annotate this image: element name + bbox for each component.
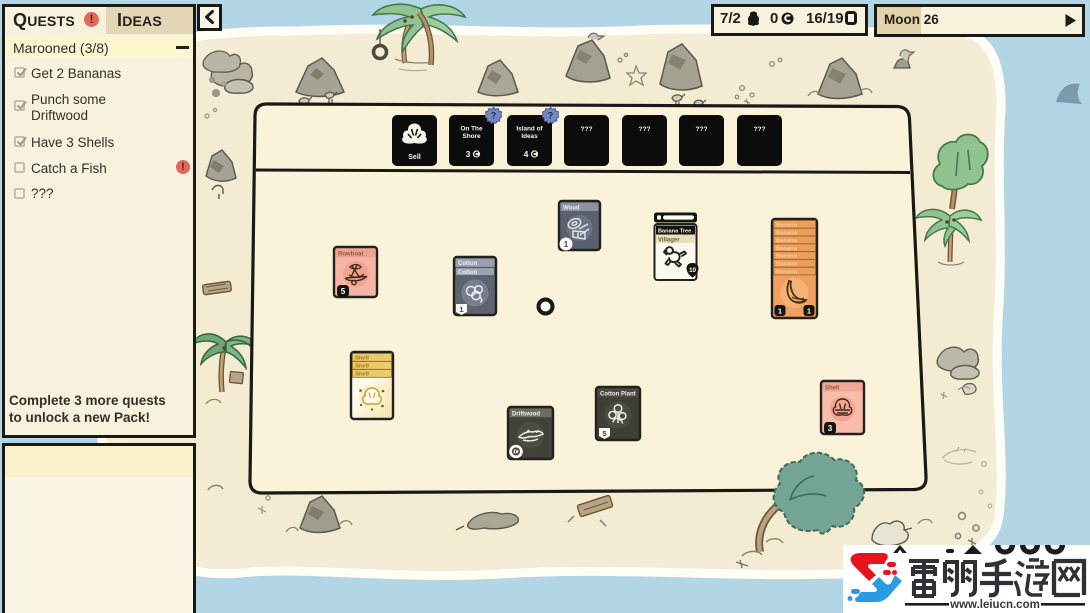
svg-text:?: ? bbox=[491, 111, 496, 121]
svg-text:Banana: Banana bbox=[776, 254, 798, 260]
svg-text:1: 1 bbox=[459, 305, 463, 314]
svg-text:1: 1 bbox=[778, 307, 782, 316]
svg-text:www.leiucn.com: www.leiucn.com bbox=[949, 599, 1040, 611]
svg-text:Island of: Island of bbox=[516, 126, 543, 133]
svg-text:Driftwood: Driftwood bbox=[512, 411, 540, 417]
svg-text:Sell: Sell bbox=[408, 154, 421, 161]
svg-text:10: 10 bbox=[689, 267, 697, 274]
svg-text:Cotton: Cotton bbox=[458, 261, 478, 267]
svg-text:Banana: Banana bbox=[776, 262, 798, 268]
svg-text:Shell: Shell bbox=[825, 386, 840, 392]
svg-text:Banana: Banana bbox=[776, 230, 798, 236]
svg-text:Shell: Shell bbox=[355, 364, 369, 370]
svg-text:???: ??? bbox=[753, 126, 765, 133]
svg-text:1: 1 bbox=[564, 240, 569, 249]
svg-text:Cotton Plant: Cotton Plant bbox=[600, 391, 636, 397]
svg-text:Banana: Banana bbox=[776, 269, 798, 275]
svg-text:???: ??? bbox=[695, 126, 707, 133]
svg-text:Shore: Shore bbox=[462, 133, 481, 140]
svg-text:5: 5 bbox=[341, 287, 346, 296]
svg-text:Rowboat: Rowboat bbox=[338, 252, 363, 258]
svg-text:4: 4 bbox=[524, 149, 529, 159]
svg-text:On The: On The bbox=[460, 126, 482, 133]
svg-text:1: 1 bbox=[807, 307, 811, 316]
svg-text:Shell: Shell bbox=[355, 372, 369, 378]
svg-text:Shell: Shell bbox=[355, 356, 369, 362]
svg-text:Banana: Banana bbox=[776, 238, 798, 244]
svg-text:5: 5 bbox=[602, 429, 606, 438]
svg-text:?: ? bbox=[548, 111, 553, 121]
svg-text:Villager: Villager bbox=[658, 238, 680, 244]
svg-text:???: ??? bbox=[638, 126, 650, 133]
svg-text:Banana: Banana bbox=[776, 246, 798, 252]
svg-text:Banana: Banana bbox=[776, 223, 798, 229]
svg-text:Wood: Wood bbox=[563, 206, 580, 212]
svg-text:???: ??? bbox=[580, 126, 592, 133]
svg-text:Cotton: Cotton bbox=[458, 270, 478, 276]
svg-text:3: 3 bbox=[466, 149, 471, 159]
svg-text:Banana Tree: Banana Tree bbox=[658, 229, 691, 235]
svg-text:Ideas: Ideas bbox=[521, 133, 538, 140]
